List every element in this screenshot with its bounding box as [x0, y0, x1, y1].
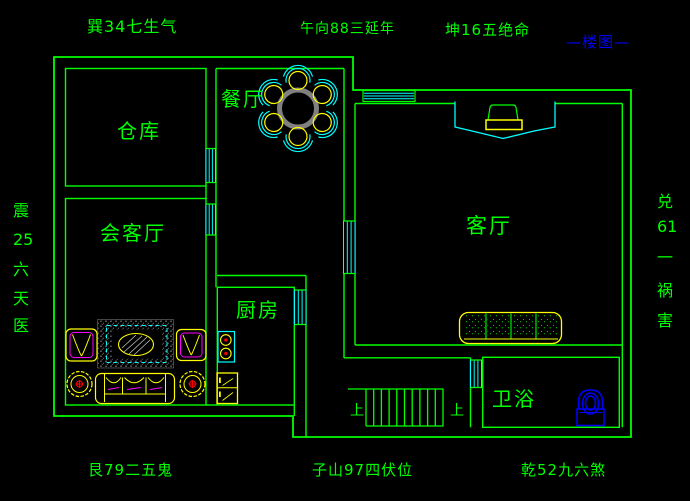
window-living-top: [363, 91, 415, 102]
fridge: [217, 373, 238, 404]
window-reception-east: [206, 204, 216, 235]
living-sofa: [460, 313, 562, 344]
window-bathroom-west: [471, 360, 482, 388]
label-left-char: 天: [13, 289, 29, 308]
reception-rug: [98, 320, 174, 369]
label-right-char: 兑: [657, 192, 673, 211]
floor-plan-svg: 巽34七生气 午向88三延年 坤16五绝命 —楼图— 艮79二五鬼 子山97四伏…: [0, 0, 690, 501]
floor-plan-screenshot: 巽34七生气 午向88三延年 坤16五绝命 —楼图— 艮79二五鬼 子山97四伏…: [0, 0, 690, 501]
armchair-right: [177, 330, 207, 361]
label-top-right: 坤16五绝命: [445, 21, 530, 39]
reception-sofa: [96, 374, 175, 404]
label-left-char: 25: [13, 230, 33, 249]
tv-unit: [455, 102, 555, 139]
label-dining: 餐厅: [221, 87, 265, 111]
tv-stand: [486, 120, 522, 130]
toilet: [577, 390, 604, 426]
label-kitchen: 厨房: [236, 298, 280, 322]
label-right-column: 兑 61 一 祸 害: [657, 192, 677, 330]
dining-table: [280, 90, 317, 127]
label-right-char: 61: [657, 217, 677, 236]
stair-labels: 上 上: [350, 403, 464, 419]
label-bottom-right: 乾52九六煞: [521, 461, 606, 479]
label-bathroom: 卫浴: [492, 387, 536, 411]
label-top-center: 午向88三延年: [300, 21, 395, 37]
side-table-right: [180, 372, 205, 397]
side-table-left: [67, 372, 92, 397]
kitchen-appliances: [217, 332, 238, 404]
label-living: 客厅: [466, 214, 512, 238]
label-storage: 仓库: [117, 119, 161, 143]
window-living-west: [344, 221, 356, 274]
label-reception: 会客厅: [100, 221, 166, 245]
stairs-up-right: 上: [450, 403, 464, 419]
stove: [218, 332, 235, 363]
tv: [488, 105, 518, 120]
label-left-char: 震: [13, 201, 29, 220]
label-left-column: 震 25 六 天 医: [13, 201, 33, 335]
label-right-char: 祸: [657, 281, 673, 300]
label-bottom-center: 子山97四伏位: [312, 461, 413, 479]
label-top-left: 巽34七生气: [87, 17, 177, 36]
label-right-char: 一: [657, 248, 673, 267]
reception-furniture: [66, 320, 206, 404]
label-left-char: 医: [13, 316, 29, 335]
stairs-up-left: 上: [350, 403, 364, 419]
dining-table-set: [253, 65, 342, 151]
window-kitchen-east: [295, 290, 307, 325]
window-storage-east: [206, 149, 216, 183]
label-left-char: 六: [13, 260, 29, 279]
plan-title: —楼图—: [566, 33, 630, 51]
label-bottom-left: 艮79二五鬼: [88, 461, 173, 479]
armchair-left: [66, 329, 97, 361]
label-right-char: 害: [657, 311, 673, 330]
